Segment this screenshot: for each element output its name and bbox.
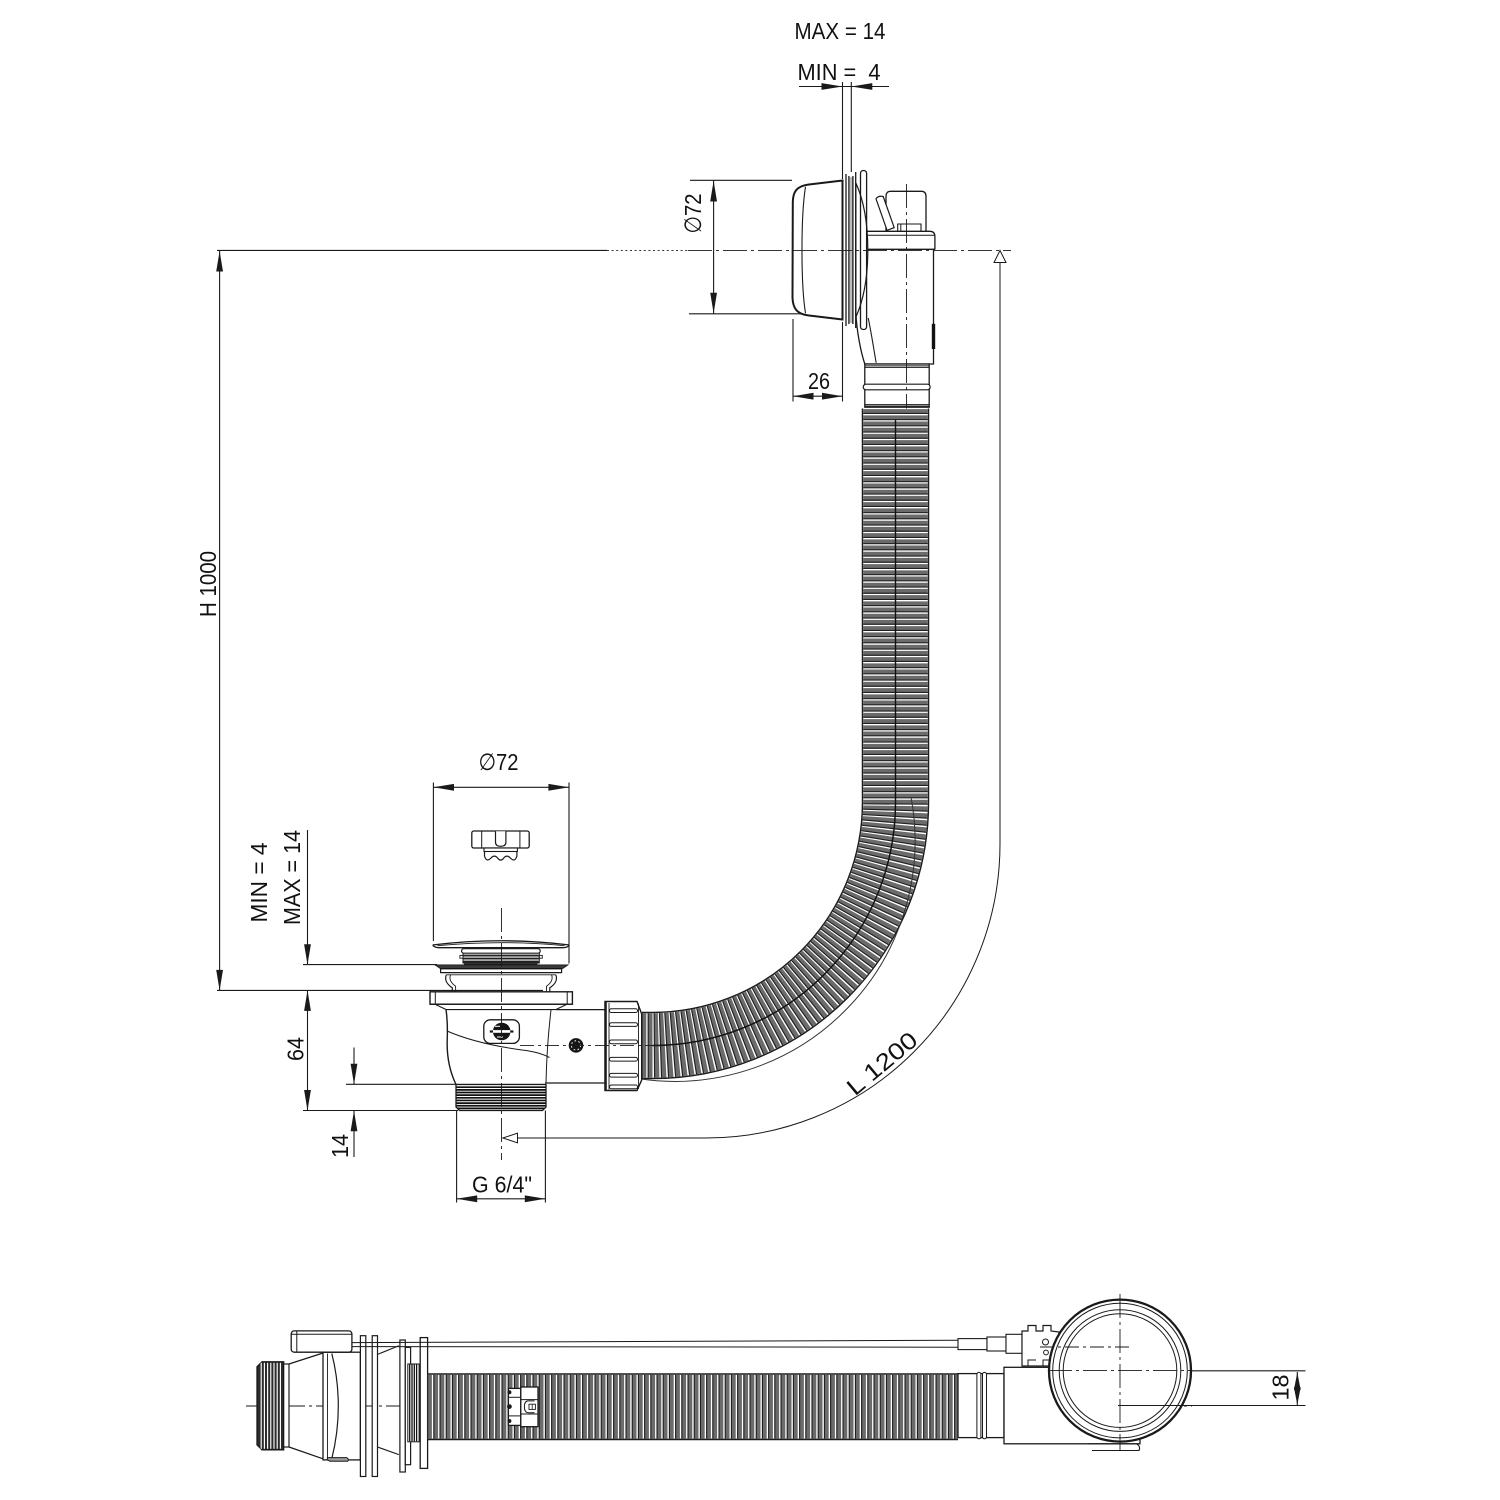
svg-text:∅72: ∅72 [680,194,706,234]
svg-text:MAX = 14: MAX = 14 [795,18,886,44]
svg-text:18: 18 [1268,1375,1294,1401]
svg-text:MAX = 14: MAX = 14 [279,830,305,925]
svg-text:14: 14 [327,1134,353,1158]
svg-text:H 1000: H 1000 [195,551,221,617]
svg-text:64: 64 [283,1037,309,1061]
svg-text:G 6/4": G 6/4" [472,1172,532,1198]
svg-text:26: 26 [808,368,830,394]
svg-text:∅72: ∅72 [479,749,519,775]
svg-text:MIN = 4: MIN = 4 [246,843,272,923]
svg-text:MIN = 4: MIN = 4 [798,59,881,85]
